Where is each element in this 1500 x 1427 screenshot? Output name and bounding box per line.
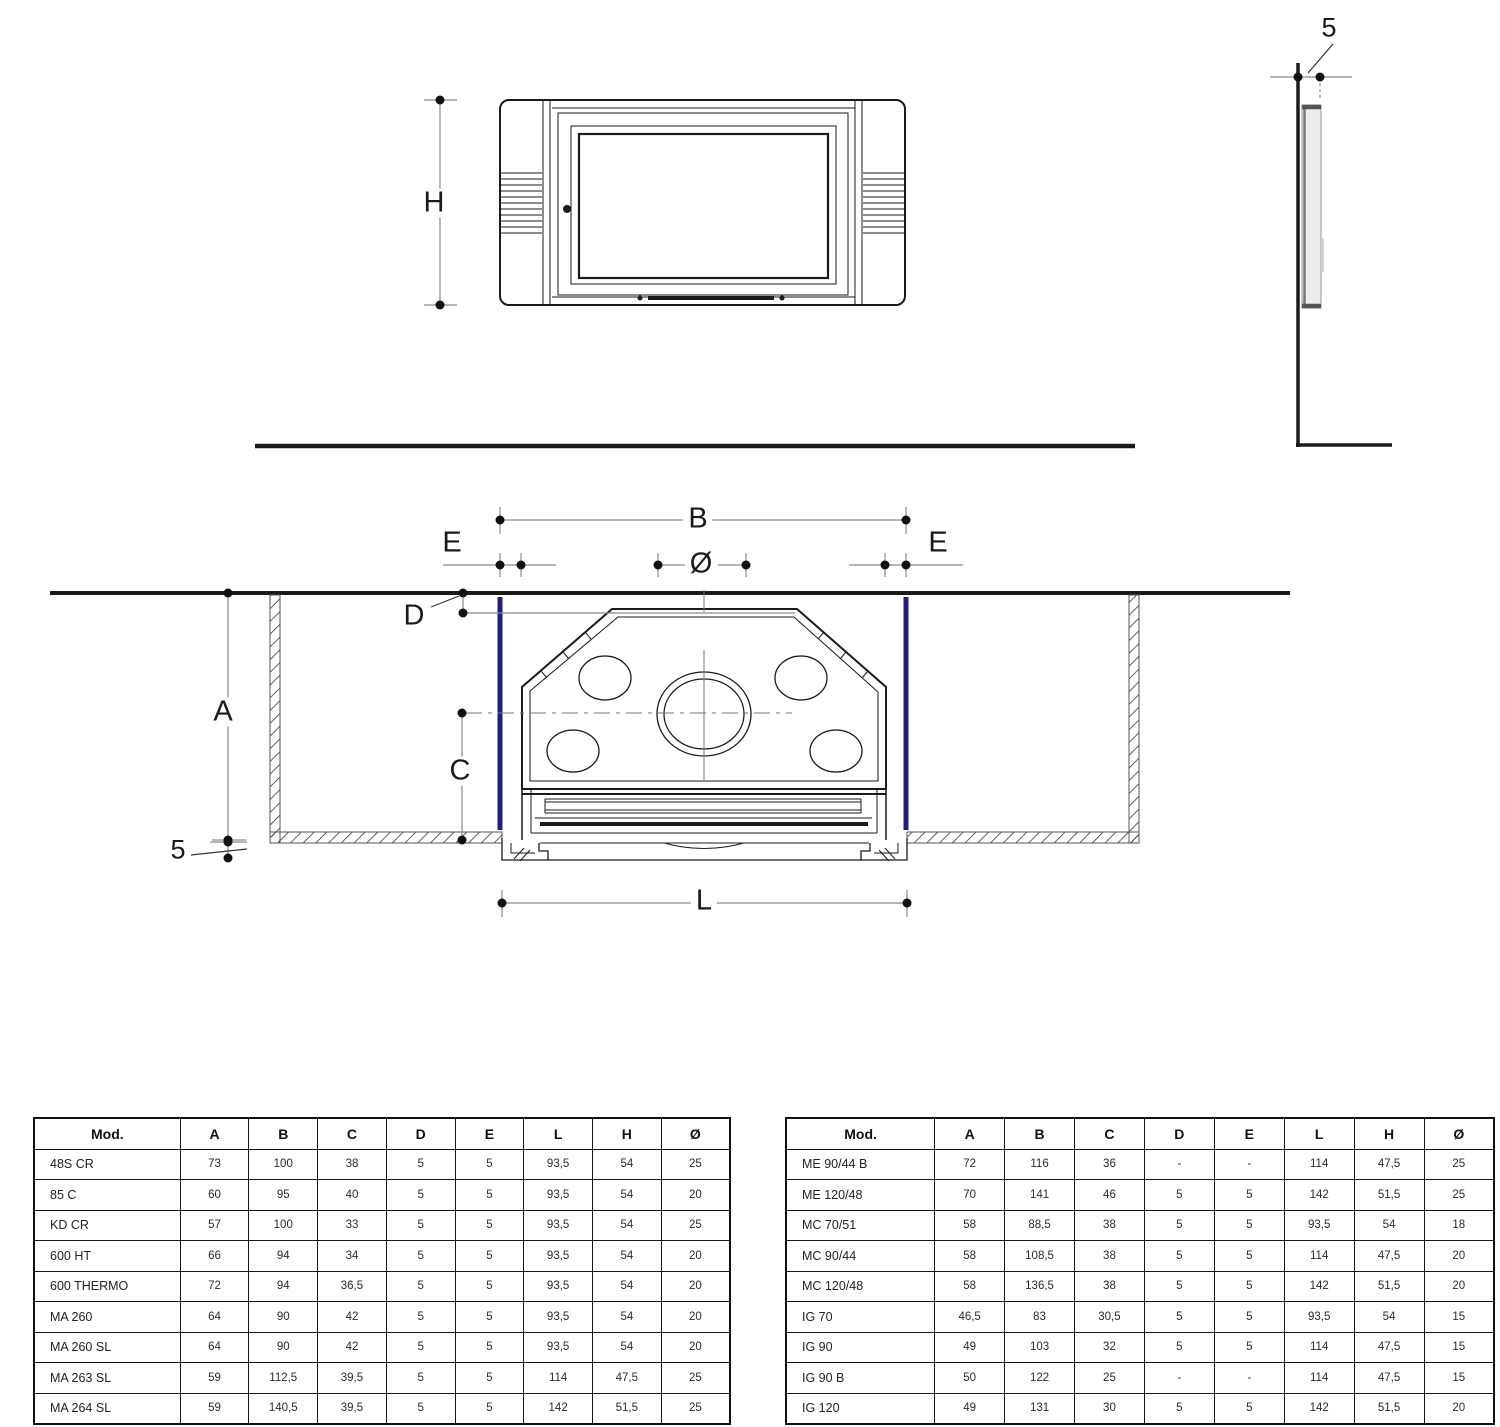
value-cell: 15: [1424, 1332, 1494, 1363]
value-cell: 103: [1005, 1332, 1075, 1363]
value-cell: 64: [180, 1302, 249, 1333]
header-cell: L: [524, 1118, 593, 1149]
value-cell: 47,5: [1354, 1363, 1424, 1394]
value-cell: 142: [1284, 1180, 1354, 1211]
value-cell: 114: [1284, 1363, 1354, 1394]
model-cell: MA 263 SL: [34, 1363, 180, 1394]
value-cell: 51,5: [1354, 1180, 1424, 1211]
value-cell: 25: [661, 1210, 730, 1241]
value-cell: 38: [1075, 1241, 1145, 1272]
value-cell: 95: [249, 1180, 318, 1211]
value-cell: 5: [455, 1210, 524, 1241]
value-cell: 93,5: [524, 1271, 593, 1302]
value-cell: 5: [386, 1332, 455, 1363]
table-row: MC 70/515888,5385593,55418: [786, 1210, 1494, 1241]
value-cell: 136,5: [1005, 1271, 1075, 1302]
value-cell: 58: [935, 1271, 1005, 1302]
value-cell: 114: [1284, 1332, 1354, 1363]
door-glass: [579, 134, 828, 278]
value-cell: 36: [1075, 1149, 1145, 1180]
table-row: 85 C6095405593,55420: [34, 1180, 730, 1211]
model-cell: 85 C: [34, 1180, 180, 1211]
table-row: IG 90 B5012225--11447,515: [786, 1363, 1494, 1394]
value-cell: 47,5: [1354, 1332, 1424, 1363]
dim-label-side-5: 5: [1316, 15, 1341, 42]
value-cell: 5: [1144, 1210, 1214, 1241]
dim-label-e-left: E: [437, 529, 466, 558]
value-cell: 58: [935, 1210, 1005, 1241]
value-cell: 39,5: [318, 1393, 387, 1424]
value-cell: 46,5: [935, 1302, 1005, 1333]
value-cell: 54: [1354, 1302, 1424, 1333]
value-cell: 114: [1284, 1241, 1354, 1272]
table-row: MA 264 SL59140,539,55514251,525: [34, 1393, 730, 1424]
value-cell: 20: [1424, 1241, 1494, 1272]
value-cell: 5: [1214, 1271, 1284, 1302]
value-cell: 20: [661, 1241, 730, 1272]
model-cell: IG 120: [786, 1393, 935, 1424]
value-cell: -: [1144, 1149, 1214, 1180]
value-cell: 5: [1214, 1302, 1284, 1333]
value-cell: 54: [592, 1302, 661, 1333]
value-cell: 94: [249, 1271, 318, 1302]
value-cell: 70: [935, 1180, 1005, 1211]
dimension-dots: [224, 516, 912, 908]
model-cell: MC 120/48: [786, 1271, 935, 1302]
table-row: MC 120/4858136,5385514251,520: [786, 1271, 1494, 1302]
value-cell: 59: [180, 1363, 249, 1394]
model-cell: ME 90/44 B: [786, 1149, 935, 1180]
value-cell: 5: [455, 1393, 524, 1424]
value-cell: 131: [1005, 1393, 1075, 1424]
recess-wall-left: [270, 595, 280, 843]
value-cell: 116: [1005, 1149, 1075, 1180]
value-cell: 15: [1424, 1302, 1494, 1333]
value-cell: 142: [524, 1393, 593, 1424]
value-cell: 93,5: [524, 1241, 593, 1272]
model-cell: MA 264 SL: [34, 1393, 180, 1424]
table-row: MA 2606490425593,55420: [34, 1302, 730, 1333]
value-cell: 40: [318, 1180, 387, 1211]
value-cell: 39,5: [318, 1363, 387, 1394]
value-cell: 72: [935, 1149, 1005, 1180]
recess-floor-left: [270, 832, 502, 843]
value-cell: 5: [1144, 1271, 1214, 1302]
value-cell: 20: [661, 1302, 730, 1333]
header-cell: C: [318, 1118, 387, 1149]
value-cell: 83: [1005, 1302, 1075, 1333]
value-cell: 57: [180, 1210, 249, 1241]
dim-label-a: A: [208, 698, 237, 727]
table-row: IG 12049131305514251,520: [786, 1393, 1494, 1424]
value-cell: 25: [661, 1363, 730, 1394]
value-cell: 114: [1284, 1149, 1354, 1180]
model-cell: IG 90: [786, 1332, 935, 1363]
value-cell: 49: [935, 1393, 1005, 1424]
header-cell: C: [1075, 1118, 1145, 1149]
recess-wall-right: [1129, 595, 1139, 843]
value-cell: 32: [1075, 1332, 1145, 1363]
model-cell: MA 260: [34, 1302, 180, 1333]
model-cell: MC 90/44: [786, 1241, 935, 1272]
value-cell: 5: [455, 1302, 524, 1333]
model-cell: 48S CR: [34, 1149, 180, 1180]
value-cell: 5: [386, 1180, 455, 1211]
value-cell: 72: [180, 1271, 249, 1302]
value-cell: 20: [1424, 1393, 1494, 1424]
value-cell: 5: [455, 1149, 524, 1180]
value-cell: 112,5: [249, 1363, 318, 1394]
value-cell: 5: [1214, 1210, 1284, 1241]
value-cell: 54: [592, 1210, 661, 1241]
model-cell: ME 120/48: [786, 1180, 935, 1211]
table-row: IG 7046,58330,55593,55415: [786, 1302, 1494, 1333]
header-cell: B: [1005, 1118, 1075, 1149]
table-row: 48S CR73100385593,55425: [34, 1149, 730, 1180]
value-cell: 114: [524, 1363, 593, 1394]
value-cell: 108,5: [1005, 1241, 1075, 1272]
header-cell: Mod.: [34, 1118, 180, 1149]
dim-label-c: C: [445, 757, 476, 786]
model-cell: MA 260 SL: [34, 1332, 180, 1363]
value-cell: 5: [455, 1332, 524, 1363]
value-cell: 142: [1284, 1271, 1354, 1302]
dim-label-e-right: E: [923, 529, 952, 558]
value-cell: 36,5: [318, 1271, 387, 1302]
vent-grille-right: [863, 173, 904, 233]
value-cell: 122: [1005, 1363, 1075, 1394]
spec-table-left: Mod.ABCDELHØ48S CR73100385593,5542585 C6…: [33, 1117, 731, 1425]
value-cell: 38: [318, 1149, 387, 1180]
value-cell: 66: [180, 1241, 249, 1272]
value-cell: 93,5: [524, 1332, 593, 1363]
value-cell: 94: [249, 1241, 318, 1272]
table-row: ME 120/4870141465514251,525: [786, 1180, 1494, 1211]
header-cell: B: [249, 1118, 318, 1149]
value-cell: 93,5: [524, 1149, 593, 1180]
value-cell: 15: [1424, 1363, 1494, 1394]
value-cell: 30,5: [1075, 1302, 1145, 1333]
value-cell: 5: [386, 1241, 455, 1272]
value-cell: 60: [180, 1180, 249, 1211]
drawing-linework: [0, 0, 1500, 1080]
value-cell: 5: [455, 1363, 524, 1394]
value-cell: 100: [249, 1210, 318, 1241]
value-cell: 54: [592, 1332, 661, 1363]
dim-label-h: H: [419, 189, 450, 218]
value-cell: 33: [318, 1210, 387, 1241]
value-cell: 20: [661, 1180, 730, 1211]
header-cell: D: [386, 1118, 455, 1149]
value-cell: 38: [1075, 1210, 1145, 1241]
value-cell: 5: [386, 1393, 455, 1424]
value-cell: 5: [1144, 1241, 1214, 1272]
value-cell: 90: [249, 1332, 318, 1363]
value-cell: 50: [935, 1363, 1005, 1394]
table-row: KD CR57100335593,55425: [34, 1210, 730, 1241]
value-cell: 42: [318, 1332, 387, 1363]
value-cell: -: [1214, 1149, 1284, 1180]
header-cell: L: [1284, 1118, 1354, 1149]
table-row: MC 90/4458108,5385511447,520: [786, 1241, 1494, 1272]
value-cell: 140,5: [249, 1393, 318, 1424]
value-cell: 88,5: [1005, 1210, 1075, 1241]
dim-label-d: D: [399, 602, 430, 631]
value-cell: 51,5: [1354, 1271, 1424, 1302]
value-cell: 46: [1075, 1180, 1145, 1211]
value-cell: 5: [386, 1149, 455, 1180]
value-cell: 59: [180, 1393, 249, 1424]
header-cell: H: [592, 1118, 661, 1149]
value-cell: 51,5: [1354, 1393, 1424, 1424]
value-cell: 93,5: [524, 1180, 593, 1211]
value-cell: 20: [661, 1271, 730, 1302]
value-cell: 47,5: [592, 1363, 661, 1394]
recess-floor-right: [907, 832, 1139, 843]
header-cell: A: [935, 1118, 1005, 1149]
value-cell: 42: [318, 1302, 387, 1333]
model-cell: KD CR: [34, 1210, 180, 1241]
value-cell: 100: [249, 1149, 318, 1180]
value-cell: 5: [455, 1180, 524, 1211]
value-cell: 73: [180, 1149, 249, 1180]
technical-drawing: H 5 B E E Ø D A C 5 L: [0, 0, 1500, 1080]
table-row: ME 90/44 B7211636--11447,525: [786, 1149, 1494, 1180]
value-cell: 93,5: [524, 1302, 593, 1333]
header-cell: Mod.: [786, 1118, 935, 1149]
dim-label-b: B: [683, 505, 712, 534]
value-cell: 20: [661, 1332, 730, 1363]
value-cell: 38: [1075, 1271, 1145, 1302]
value-cell: 25: [661, 1149, 730, 1180]
header-cell: D: [1144, 1118, 1214, 1149]
value-cell: 93,5: [524, 1210, 593, 1241]
value-cell: 51,5: [592, 1393, 661, 1424]
value-cell: 54: [592, 1271, 661, 1302]
value-cell: 49: [935, 1332, 1005, 1363]
value-cell: 54: [592, 1149, 661, 1180]
value-cell: 5: [1144, 1180, 1214, 1211]
value-cell: 25: [1424, 1180, 1494, 1211]
value-cell: 54: [592, 1180, 661, 1211]
header-cell: H: [1354, 1118, 1424, 1149]
value-cell: 5: [1144, 1302, 1214, 1333]
table-header-row: Mod.ABCDELHØ: [34, 1118, 730, 1149]
spec-table-right: Mod.ABCDELHØME 90/44 B7211636--11447,525…: [785, 1117, 1495, 1425]
value-cell: 30: [1075, 1393, 1145, 1424]
value-cell: 25: [1075, 1363, 1145, 1394]
value-cell: 25: [1424, 1149, 1494, 1180]
value-cell: 5: [1214, 1180, 1284, 1211]
value-cell: 93,5: [1284, 1210, 1354, 1241]
value-cell: 5: [455, 1241, 524, 1272]
table-header-row: Mod.ABCDELHØ: [786, 1118, 1494, 1149]
model-cell: 600 THERMO: [34, 1271, 180, 1302]
header-cell: Ø: [1424, 1118, 1494, 1149]
value-cell: 34: [318, 1241, 387, 1272]
header-cell: E: [455, 1118, 524, 1149]
value-cell: 54: [592, 1241, 661, 1272]
vent-grille-left: [501, 173, 542, 233]
value-cell: 47,5: [1354, 1149, 1424, 1180]
value-cell: 142: [1284, 1393, 1354, 1424]
model-cell: MC 70/51: [786, 1210, 935, 1241]
value-cell: 18: [1424, 1210, 1494, 1241]
table-row: MA 263 SL59112,539,55511447,525: [34, 1363, 730, 1394]
value-cell: 5: [455, 1271, 524, 1302]
model-cell: 600 HT: [34, 1241, 180, 1272]
value-cell: 5: [1214, 1241, 1284, 1272]
value-cell: -: [1144, 1363, 1214, 1394]
value-cell: 141: [1005, 1180, 1075, 1211]
value-cell: 5: [1214, 1393, 1284, 1424]
value-cell: 5: [386, 1271, 455, 1302]
door-handle: [563, 205, 571, 213]
value-cell: 58: [935, 1241, 1005, 1272]
plan-dimension-lines: [191, 507, 963, 917]
header-cell: A: [180, 1118, 249, 1149]
dim-label-l: L: [691, 887, 717, 916]
value-cell: 5: [386, 1302, 455, 1333]
model-cell: IG 90 B: [786, 1363, 935, 1394]
value-cell: 5: [1144, 1332, 1214, 1363]
value-cell: 64: [180, 1332, 249, 1363]
value-cell: 5: [386, 1210, 455, 1241]
value-cell: 20: [1424, 1271, 1494, 1302]
model-cell: IG 70: [786, 1302, 935, 1333]
side-view-drawing: [1270, 44, 1392, 447]
value-cell: 5: [1144, 1393, 1214, 1424]
value-cell: 54: [1354, 1210, 1424, 1241]
table-row: 600 THERMO729436,55593,55420: [34, 1271, 730, 1302]
table-row: MA 260 SL6490425593,55420: [34, 1332, 730, 1363]
value-cell: 90: [249, 1302, 318, 1333]
value-cell: -: [1214, 1363, 1284, 1394]
value-cell: 47,5: [1354, 1241, 1424, 1272]
dim-label-diameter: Ø: [685, 550, 718, 579]
header-cell: E: [1214, 1118, 1284, 1149]
dim-label-plan-5: 5: [165, 837, 190, 864]
value-cell: 93,5: [1284, 1302, 1354, 1333]
value-cell: 5: [1214, 1332, 1284, 1363]
value-cell: 25: [661, 1393, 730, 1424]
header-cell: Ø: [661, 1118, 730, 1149]
front-view-drawing: [424, 96, 905, 310]
value-cell: 5: [386, 1363, 455, 1394]
table-row: 600 HT6694345593,55420: [34, 1241, 730, 1272]
table-row: IG 9049103325511447,515: [786, 1332, 1494, 1363]
